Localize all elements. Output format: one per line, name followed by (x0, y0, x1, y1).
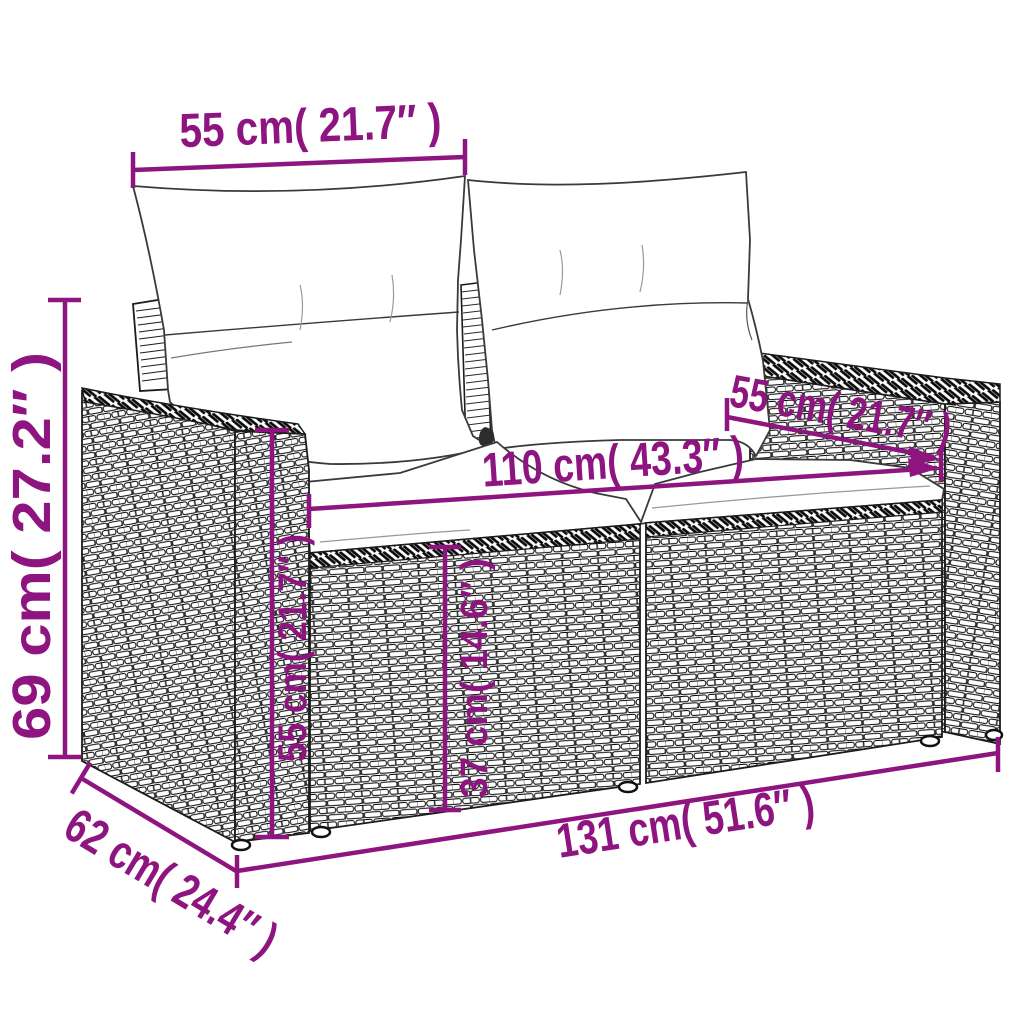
svg-text:37 cm( 14.6″ ): 37 cm( 14.6″ ) (454, 558, 496, 798)
svg-text:55 cm( 21.7″ ): 55 cm( 21.7″ ) (178, 95, 442, 158)
svg-text:55 cm( 21.7″ ): 55 cm( 21.7″ ) (271, 534, 315, 762)
svg-text:69 cm( 27.2″ ): 69 cm( 27.2″ ) (2, 352, 62, 740)
